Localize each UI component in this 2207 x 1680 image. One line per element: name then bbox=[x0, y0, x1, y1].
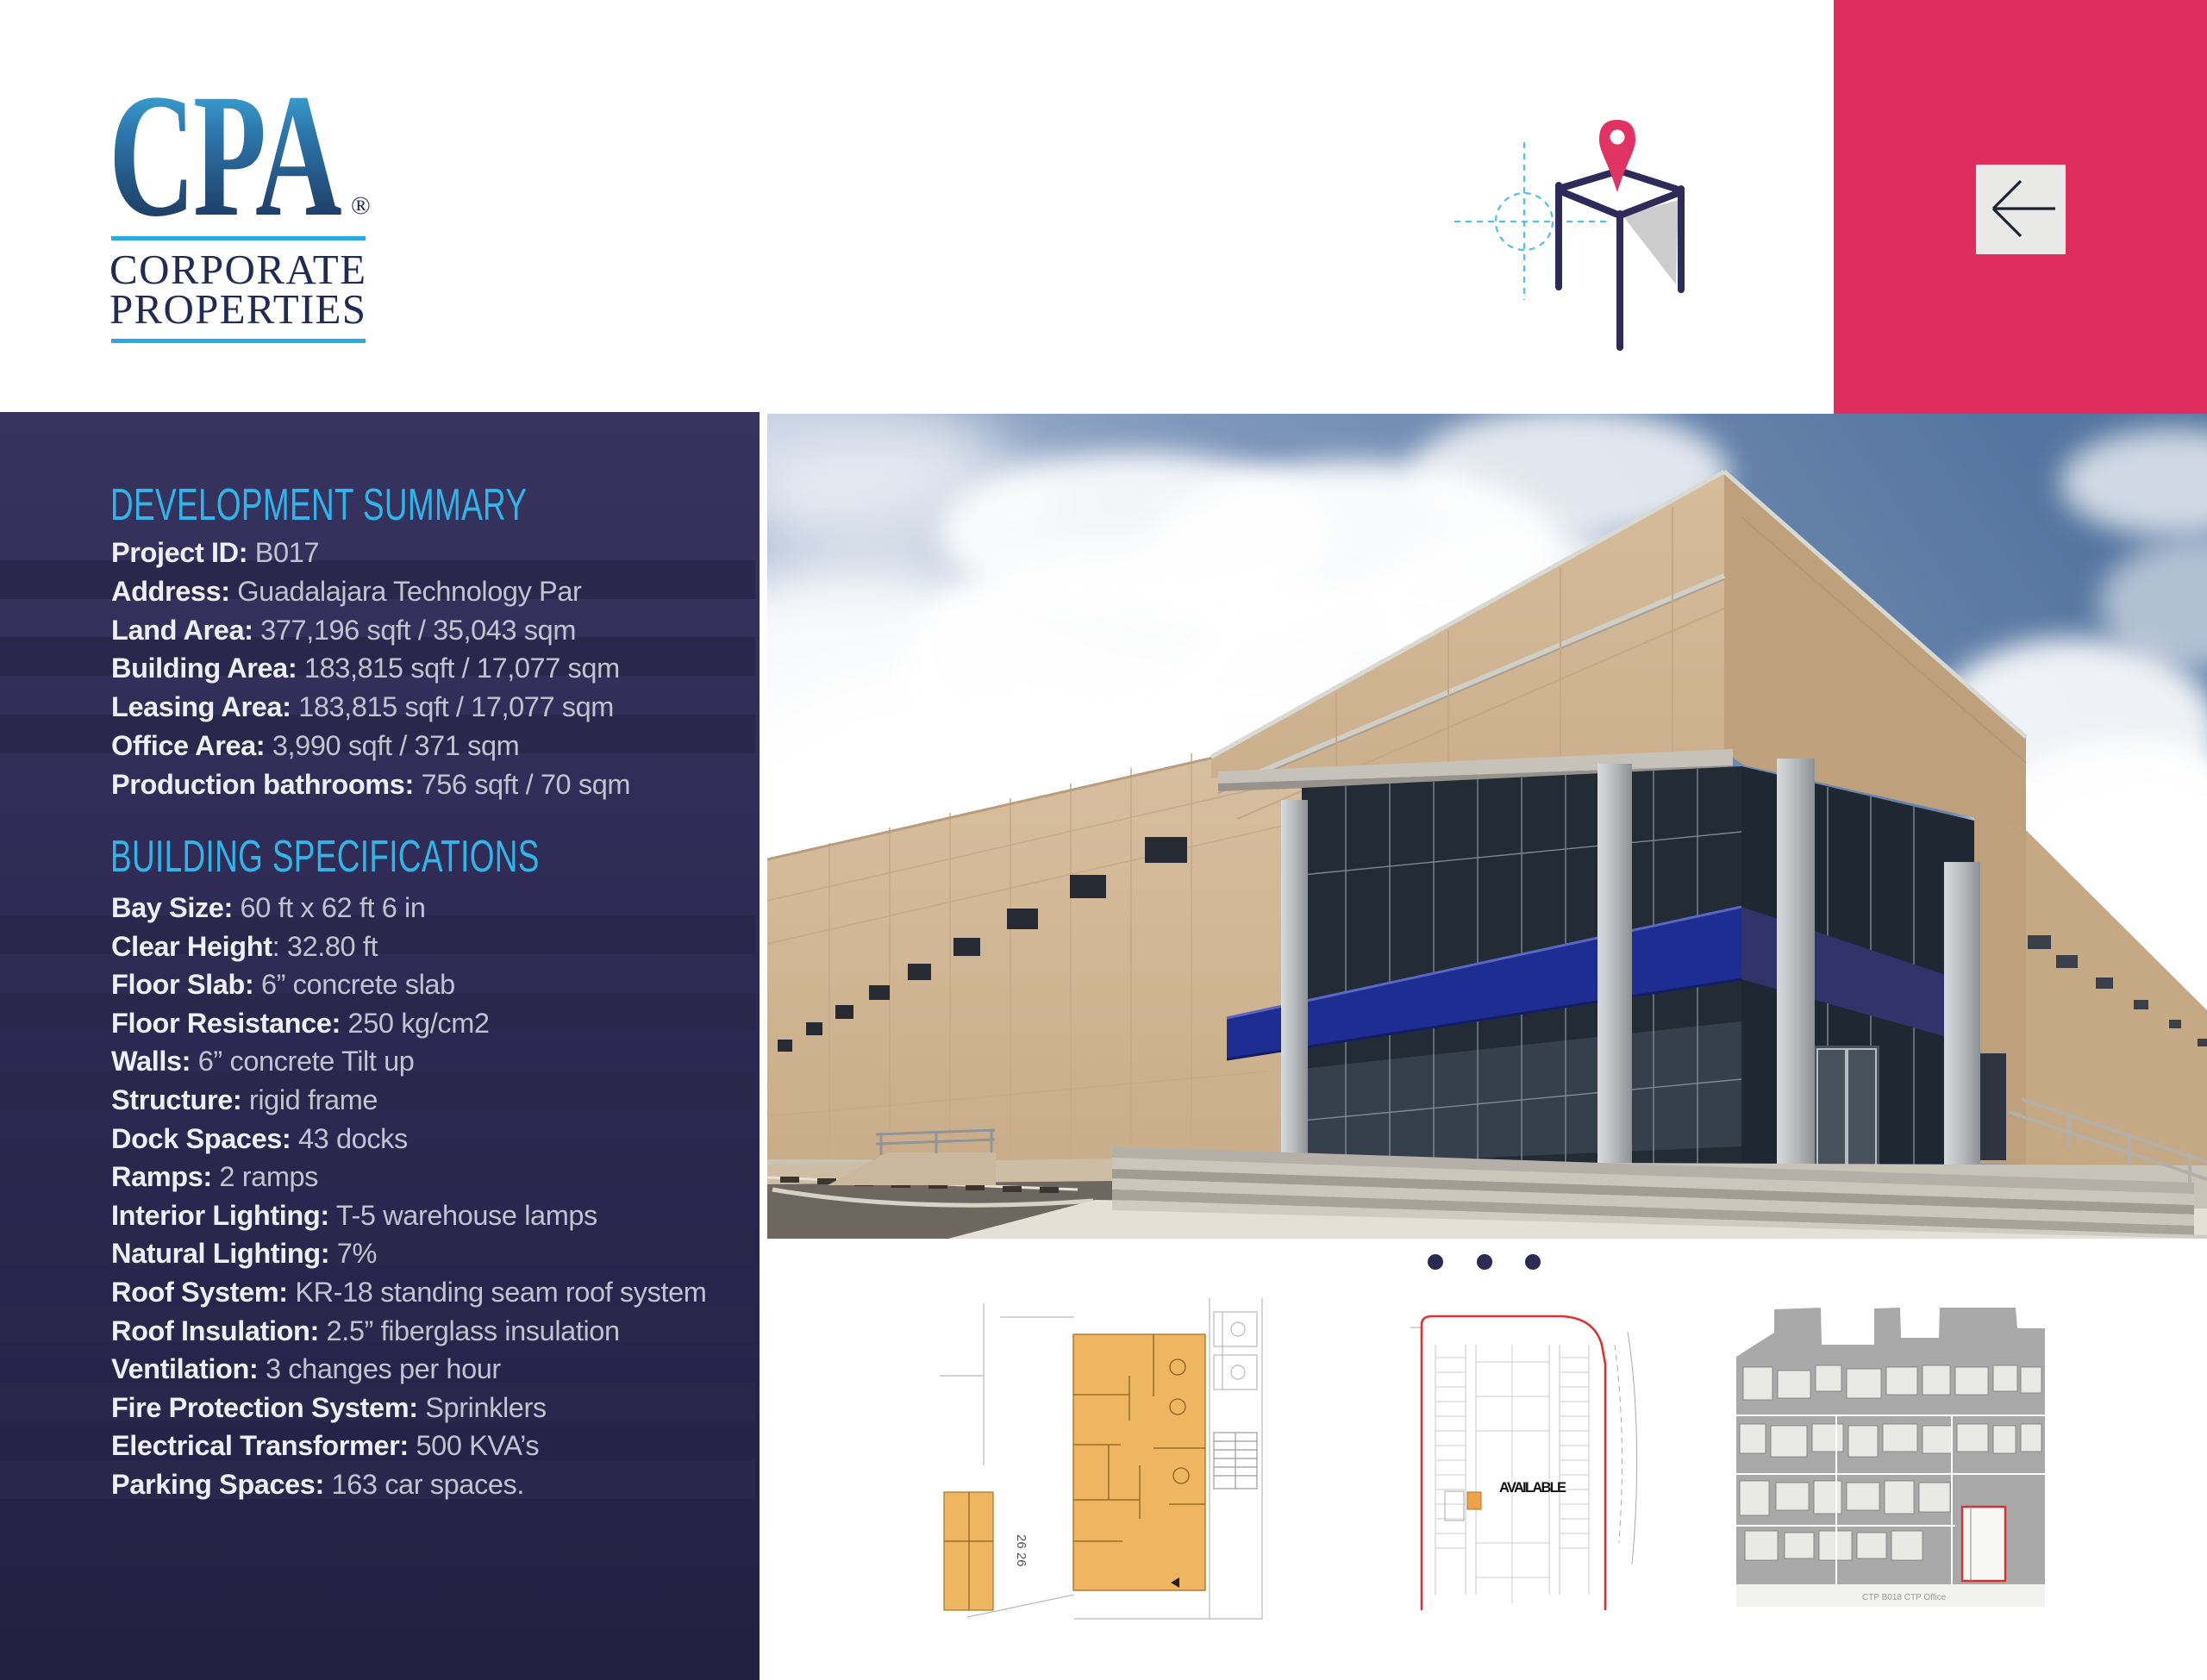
svg-text:®: ® bbox=[351, 191, 371, 220]
svg-text:PROPERTIES: PROPERTIES bbox=[109, 285, 366, 333]
svg-text:AVAILABLE: AVAILABLE bbox=[1499, 1480, 1566, 1496]
svg-text:CPA: CPA bbox=[109, 82, 341, 253]
svg-text:26 26: 26 26 bbox=[1014, 1534, 1028, 1567]
svg-text:CTP B018 CTP Office: CTP B018 CTP Office bbox=[1862, 1593, 1947, 1602]
